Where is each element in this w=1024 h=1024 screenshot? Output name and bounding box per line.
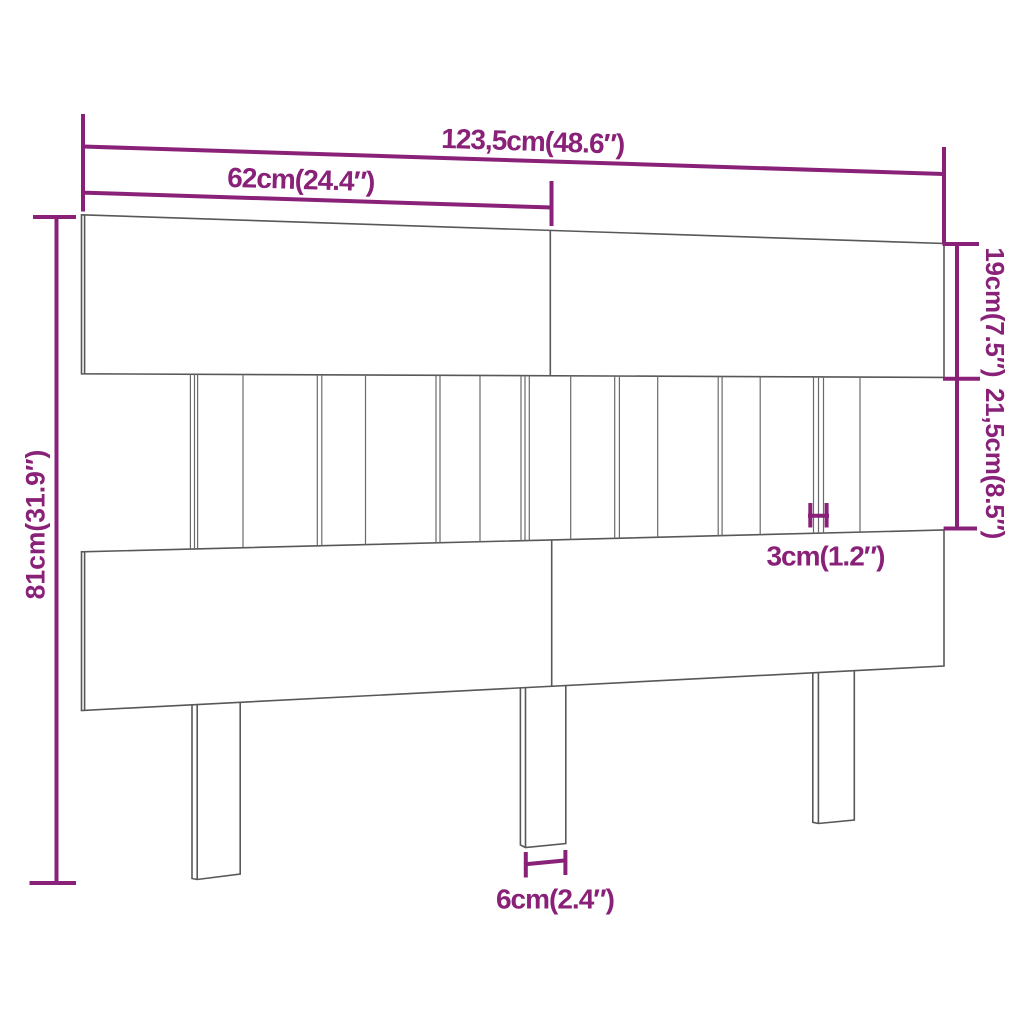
svg-text:3cm(1.2″): 3cm(1.2″) — [766, 541, 884, 572]
svg-text:62cm(24.4″): 62cm(24.4″) — [227, 162, 375, 197]
svg-text:123,5cm(48.6″): 123,5cm(48.6″) — [441, 123, 625, 160]
svg-text:81cm(31.9″): 81cm(31.9″) — [21, 450, 51, 600]
svg-text:6cm(2.4″): 6cm(2.4″) — [496, 884, 614, 915]
svg-text:19cm(7.5″): 19cm(7.5″) — [980, 247, 1010, 377]
svg-text:21,5cm(8.5″): 21,5cm(8.5″) — [980, 388, 1010, 539]
